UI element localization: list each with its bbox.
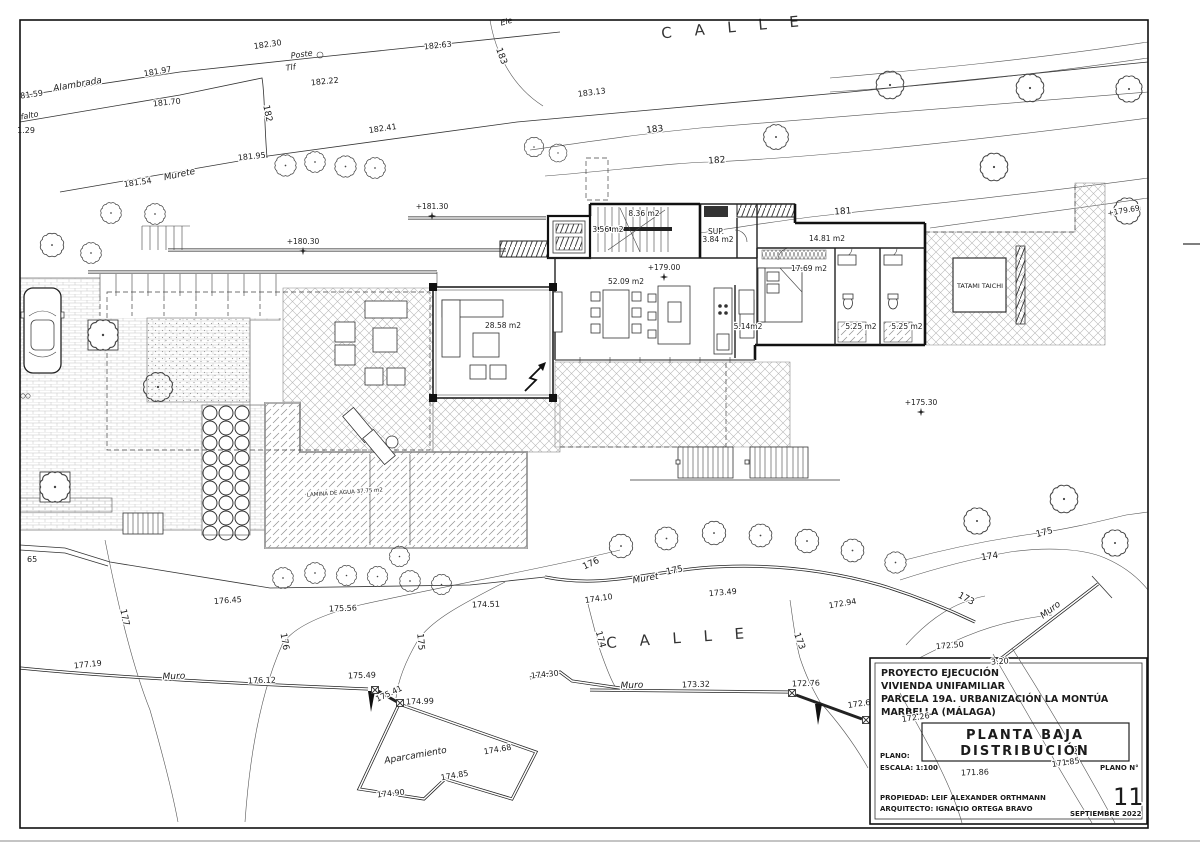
spot-label: 172.76 — [792, 679, 820, 689]
room-area-label: 5.25 m2 — [891, 322, 922, 331]
room-area-label: 5.25 m2 — [845, 322, 876, 331]
spot-label: 171.86 — [961, 768, 989, 778]
wardrobe — [762, 250, 826, 259]
title-block: PROYECTO EJECUCIÓN VIVIENDA UNIFAMILIAR … — [870, 648, 1147, 824]
garden-steps — [123, 513, 163, 534]
level-label: +179.00 — [648, 263, 681, 272]
room-area-label: 28.58 m2 — [485, 321, 521, 330]
plant-pots — [202, 405, 250, 540]
escala-label: ESCALA: 1:100 — [880, 764, 938, 772]
louver-vent — [737, 204, 795, 217]
spot-label: 174.51 — [472, 600, 500, 610]
spot-label: 175.49 — [348, 671, 376, 681]
spot-label: 173.32 — [682, 680, 710, 690]
room-area-label: 17.69 m2 — [791, 264, 827, 273]
project-line4: MARBELLA (MÁLAGA) — [881, 706, 996, 718]
spot-label: 175.56 — [329, 604, 357, 614]
plan-title-line1: PLANTA BAJA — [966, 728, 1084, 743]
muro-label: Muro — [620, 681, 644, 692]
tatami-label: TATAMI TAICHI — [956, 282, 1003, 290]
contour-label: 175 — [414, 633, 425, 651]
dining-table — [603, 290, 629, 338]
contour-label: 182 — [708, 155, 726, 166]
dark-door — [704, 206, 728, 217]
level-label: +180.30 — [287, 237, 320, 246]
room-area-label: 8.36 m2 — [628, 209, 659, 218]
project-line1: PROYECTO EJECUCIÓN — [881, 667, 999, 679]
room-area-label: 52.09 m2 — [608, 277, 644, 286]
sheet-number: 11 — [1113, 783, 1144, 811]
level-label: +181.30 — [416, 202, 449, 211]
level-label: +175.30 — [905, 398, 938, 407]
spot-label: 174.99 — [406, 697, 434, 707]
project-line2: VIVIENDA UNIFAMILIAR — [881, 681, 1006, 692]
project-line3: PARCELA 19A. URBANIZACIÓN LA MONTÚA — [881, 693, 1109, 705]
site-plan-sheet: 182.30 Poste Tlf 182.22 182.63 Ele 183 1… — [0, 0, 1200, 849]
room-area-label: 3.84 m2 — [702, 235, 733, 244]
contour-label: 181 — [834, 206, 852, 217]
coffee-table — [473, 333, 499, 357]
arquitecto-label: ARQUITECTO: IGNACIO ORTEGA BRAVO — [880, 805, 1033, 813]
muro-label: Muro — [162, 672, 186, 683]
terrace-paving — [555, 362, 790, 447]
car — [21, 288, 64, 373]
spot-label: 65 — [27, 555, 37, 564]
room-area-label: 3.56 m2 — [592, 225, 623, 234]
plano-label: PLANO: — [880, 752, 910, 760]
plano-n-label: PLANO N° — [1100, 764, 1139, 772]
spot-label: 176.12 — [248, 676, 276, 686]
contour-label: 183 — [646, 124, 664, 136]
garage-lift — [548, 216, 590, 258]
propiedad-label: PROPIEDAD: LEIF ALEXANDER ORTHMANN — [880, 794, 1046, 802]
room-area-label: 14.81 m2 — [809, 234, 845, 243]
louver-canopy — [500, 241, 548, 257]
room-area-label: 5.14m2 — [734, 322, 763, 331]
living-room — [429, 283, 557, 402]
date-label: SEPTIEMBRE 2022 — [1070, 810, 1142, 818]
spot-label: 3.20 — [991, 656, 1009, 666]
gravel-area — [147, 318, 250, 402]
